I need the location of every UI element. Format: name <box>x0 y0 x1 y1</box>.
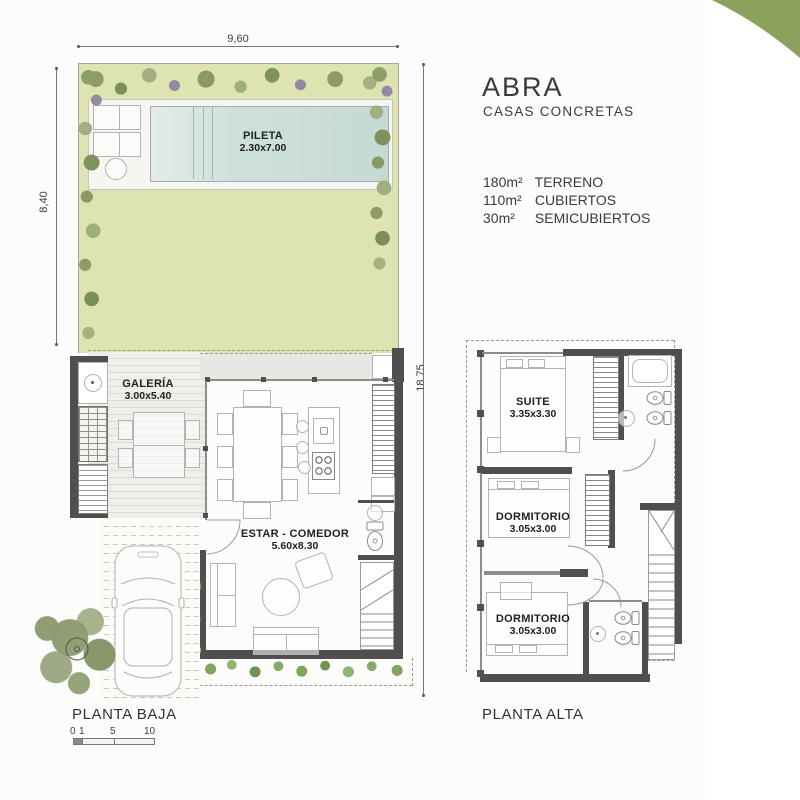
chair-symbol <box>217 479 233 501</box>
wc-wall <box>358 555 394 560</box>
bath-sink-symbol <box>590 626 606 642</box>
grill-symbol <box>84 374 102 392</box>
room-size-dormitorio-1: 3.05x3.00 <box>483 524 583 536</box>
area-value: 180m² <box>483 174 531 190</box>
garden-table-symbol <box>105 158 127 180</box>
room-label-pileta: PILETA <box>203 130 323 142</box>
area-label: SEMICUBIERTOS <box>535 210 650 226</box>
floor-plan-sheet: ABRA CASAS CONCRETAS 180m² TERRENO 110m²… <box>0 0 800 800</box>
scale-bar-tick <box>114 739 115 744</box>
room-label-estar: ESTAR - COMEDOR <box>235 528 355 540</box>
outdoor-chair-symbol <box>118 420 133 440</box>
chair-symbol <box>217 446 233 468</box>
area-label: CUBIERTOS <box>535 192 616 208</box>
nightstand-symbol <box>487 437 501 453</box>
upper-east-wall <box>675 352 682 644</box>
room-size-dormitorio-2: 3.05x3.00 <box>483 626 583 638</box>
stair-wall <box>640 503 682 510</box>
hedge-right <box>366 66 396 276</box>
sofa-symbol <box>210 563 236 627</box>
suite-closet-hatch <box>593 356 619 440</box>
toilet-symbol <box>364 521 386 553</box>
grill-shelves <box>78 464 108 514</box>
nightstand-symbol <box>566 437 580 453</box>
brand-subtitle: CASAS CONCRETAS <box>483 104 634 119</box>
stairs-ground <box>360 562 394 650</box>
galeria-west-wall <box>70 356 78 518</box>
chair-symbol <box>282 479 298 501</box>
slab-edge-dashed <box>466 340 674 341</box>
stool-symbol <box>296 420 309 433</box>
roof-edge-dashed <box>88 350 394 351</box>
bidet-symbol <box>614 630 640 646</box>
mullion <box>203 446 208 451</box>
bath2-wall <box>583 602 589 676</box>
dimension-right-line <box>423 64 424 696</box>
plot-boundary-dashed <box>412 658 413 686</box>
stool-symbol <box>296 441 309 454</box>
area-value: 30m² <box>483 210 531 226</box>
chair-symbol <box>217 413 233 435</box>
stairs-upper <box>648 510 675 660</box>
area-value: 110m² <box>483 192 531 208</box>
semicovered-strip <box>200 353 372 379</box>
chair-symbol <box>243 502 271 519</box>
hedge-left <box>74 66 106 350</box>
chair-symbol <box>243 390 271 407</box>
east-wall <box>394 352 403 658</box>
column <box>477 540 484 547</box>
dimension-top-line <box>78 46 398 47</box>
ground-floor-title: PLANTA BAJA <box>72 706 177 723</box>
room-label-dormitorio-1: DORMITORIO <box>483 511 583 523</box>
desk-symbol <box>500 582 532 600</box>
outdoor-chair-symbol <box>185 420 200 440</box>
room-size-estar: 5.60x8.30 <box>235 541 355 553</box>
dimension-left-line <box>56 68 57 345</box>
room-size-suite: 3.35x3.30 <box>493 409 573 421</box>
dimension-left-label: 8,40 <box>38 180 50 224</box>
scale-bar-tick <box>82 739 83 744</box>
toilet-symbol <box>614 610 640 626</box>
bath-sink-symbol <box>618 410 635 427</box>
outdoor-table-symbol <box>133 412 185 478</box>
stool-symbol <box>298 461 311 474</box>
bedroom-divider-wall <box>484 571 564 575</box>
rug-symbol <box>262 578 300 616</box>
appliance-box <box>371 477 395 496</box>
upper-west-wall <box>480 352 482 678</box>
scale-tick: 0 <box>70 726 76 737</box>
wc-wall <box>358 500 394 503</box>
scale-bar-fill <box>74 739 82 744</box>
corner-accent-shape <box>706 0 800 62</box>
upper-south-wall <box>480 674 650 682</box>
dimension-top-label: 9,60 <box>78 33 398 45</box>
bathtub-symbol <box>628 355 672 387</box>
bidet-symbol <box>646 410 672 426</box>
hedge-top <box>80 62 395 100</box>
slab-edge-dashed <box>466 340 467 672</box>
sink-symbol <box>313 418 334 444</box>
upper-north-wall <box>482 352 564 354</box>
suite-divider-wall <box>482 467 572 474</box>
upper-floor-title: PLANTA ALTA <box>482 706 584 723</box>
column <box>477 604 484 611</box>
entry-door-arc <box>206 518 242 556</box>
room-label-galeria: GALERÍA <box>103 378 193 390</box>
mullion <box>312 377 317 382</box>
toilet-symbol <box>646 390 672 406</box>
kitchen-cabinet-hatch <box>372 384 395 474</box>
dining-table-symbol <box>233 407 282 502</box>
room-label-suite: SUITE <box>493 396 573 408</box>
parrilla-brick <box>78 406 108 462</box>
suite-bath-door-arc <box>622 438 656 472</box>
stove-symbol <box>312 452 335 480</box>
room-size-pileta: 2.30x7.00 <box>203 143 323 155</box>
glass-wall-north <box>207 379 395 381</box>
outdoor-chair-symbol <box>185 448 200 468</box>
bath2-door-arc <box>592 578 622 608</box>
dimension-right-label: 18.75 <box>415 356 427 400</box>
sofa-symbol <box>253 627 319 655</box>
column <box>477 410 484 417</box>
brand-title: ABRA <box>482 72 564 103</box>
wc-sink-symbol <box>367 505 383 521</box>
mullion <box>261 377 266 382</box>
area-row-cubiertos: 110m² CUBIERTOS <box>483 192 616 208</box>
area-row-semicubiertos: 30m² SEMICUBIERTOS <box>483 210 650 226</box>
closet-hatch <box>585 474 610 546</box>
scale-tick: 5 <box>110 726 116 737</box>
room-label-dormitorio-2: DORMITORIO <box>483 613 583 625</box>
area-row-terreno: 180m² TERRENO <box>483 174 603 190</box>
scale-tick: 1 <box>79 726 85 737</box>
slab-edge-dashed <box>648 660 674 661</box>
tree-trunk-symbol <box>64 636 90 662</box>
hall-door-arc <box>566 545 604 579</box>
entry-closet <box>372 355 394 379</box>
mullion <box>383 377 388 382</box>
area-label: TERRENO <box>535 174 603 190</box>
scale-tick: 10 <box>144 726 155 737</box>
outdoor-chair-symbol <box>118 448 133 468</box>
scale-bar <box>73 738 155 745</box>
hedge-south <box>200 655 412 683</box>
room-size-galeria: 3.00x5.40 <box>103 391 193 403</box>
pool-step-line <box>193 107 194 179</box>
